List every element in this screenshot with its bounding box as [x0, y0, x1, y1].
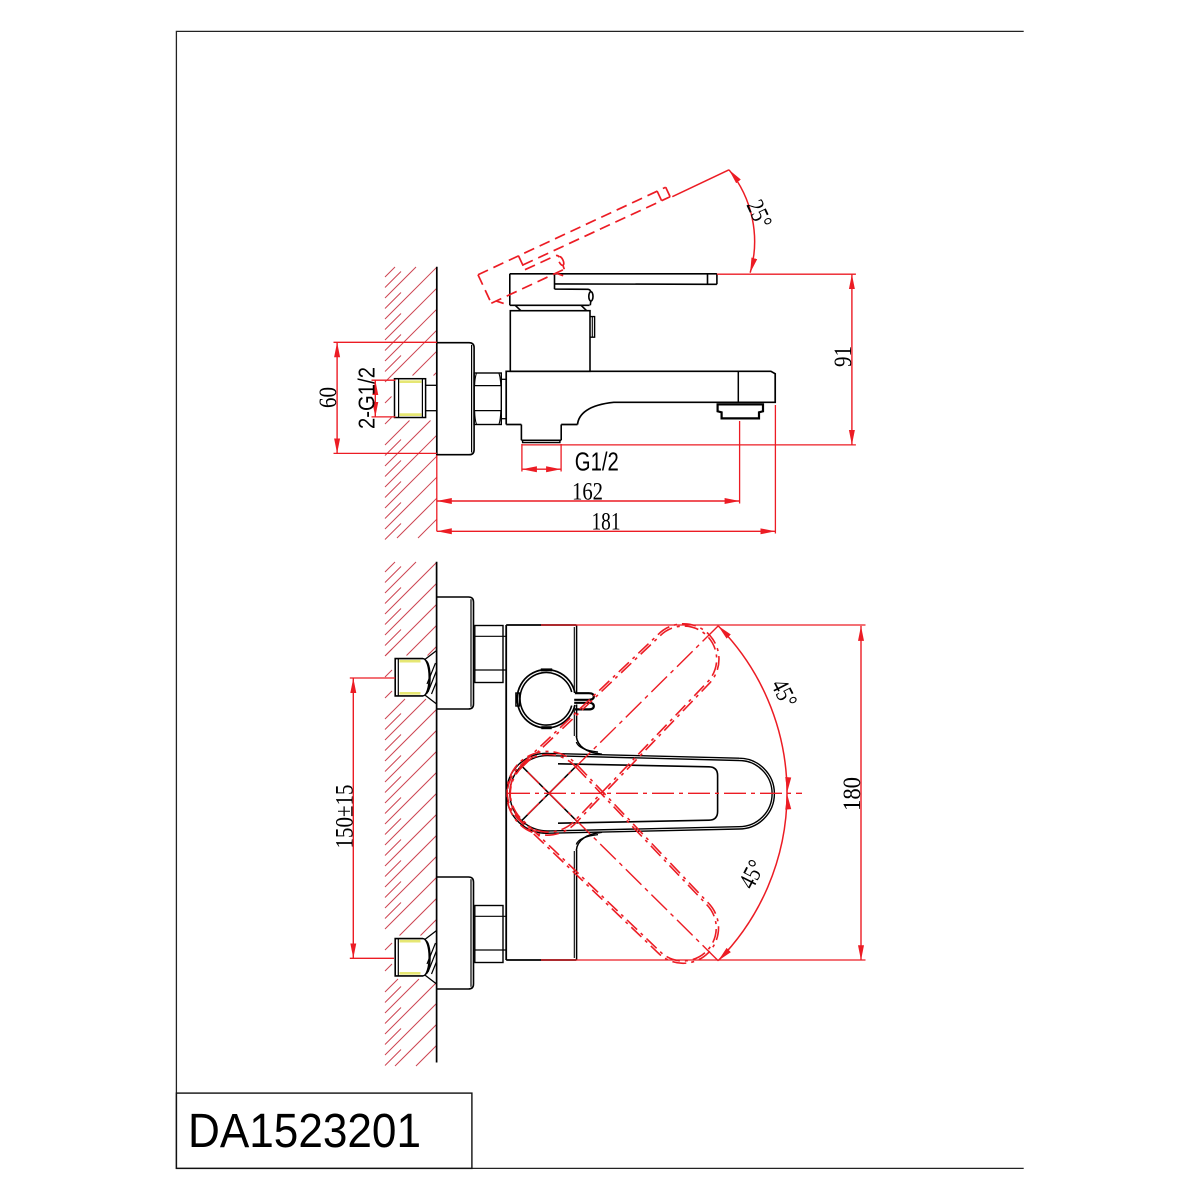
svg-text:DA1523201: DA1523201 — [188, 1104, 421, 1158]
svg-text:2-G1/2: 2-G1/2 — [353, 367, 379, 429]
svg-text:91: 91 — [830, 346, 857, 367]
svg-text:162: 162 — [572, 479, 603, 506]
svg-text:181: 181 — [592, 509, 621, 536]
svg-text:60: 60 — [315, 387, 342, 408]
svg-text:150±15: 150±15 — [331, 785, 358, 849]
svg-text:G1/2: G1/2 — [575, 449, 619, 477]
svg-text:180: 180 — [839, 777, 866, 811]
